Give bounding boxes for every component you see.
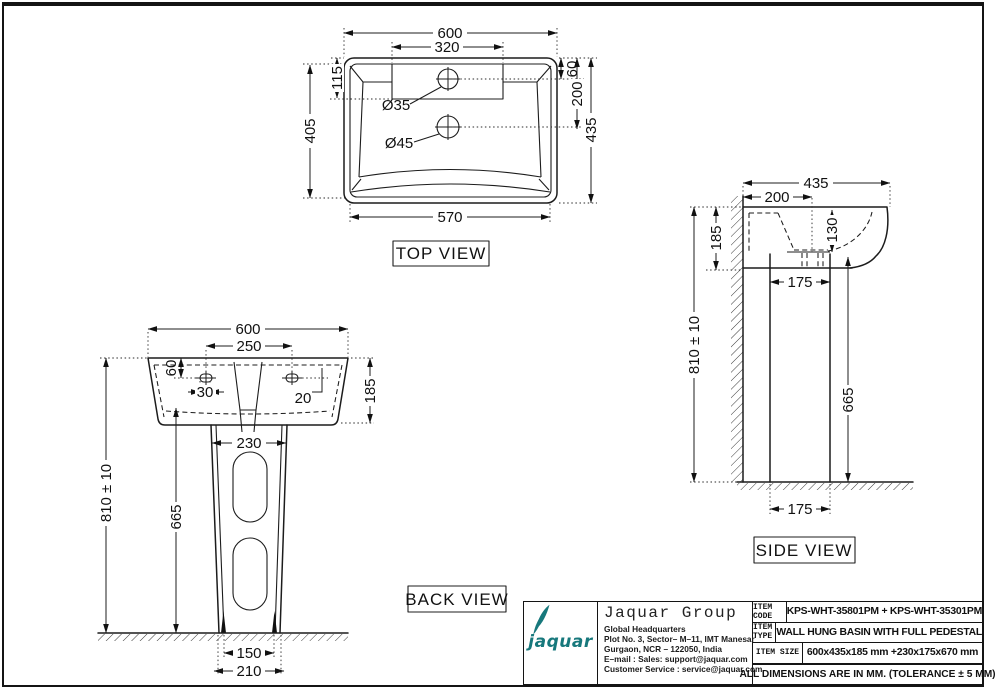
- back-view-ground: [98, 633, 348, 641]
- title-block: jaquar Jaquar Group Global Headquarters …: [523, 601, 983, 685]
- side-view-label: SIDE VIEW: [756, 541, 853, 560]
- back-view-title: BACK VIEW: [405, 586, 508, 612]
- item-size-label: ITEM SIZE: [753, 643, 803, 663]
- dim-hole-drop: 60: [163, 360, 180, 377]
- dim-hole-spacing: 250: [236, 338, 261, 355]
- dim-back-basin-height: 185: [362, 378, 379, 403]
- item-size-row: ITEM SIZE 600x435x185 mm +230x175x670 mm: [753, 643, 982, 664]
- company-service: Customer Service : service@jaquar.com: [604, 664, 748, 674]
- back-view-fixing-holes: [196, 371, 302, 385]
- dim-side-overall-height: 810 ± 10: [686, 316, 703, 374]
- item-code-row: ITEM CODE KPS-WHT-35801PM + KPS-WHT-3530…: [753, 602, 982, 623]
- dim-side-pedestal-height: 665: [840, 387, 857, 412]
- back-view: 600 250 60 30 20 185: [98, 321, 509, 680]
- item-info-cell: ITEM CODE KPS-WHT-35801PM + KPS-WHT-3530…: [753, 602, 982, 684]
- item-type-value: WALL HUNG BASIN WITH FULL PEDESTAL: [776, 623, 982, 643]
- company-email: E–mail : Sales: support@jaquar.com: [604, 654, 748, 664]
- item-size-value: 600x435x185 mm +230x175x670 mm: [803, 643, 982, 663]
- side-view-ground: [737, 482, 913, 490]
- dim-bowl-depth: 130: [824, 217, 841, 242]
- dim-base-depth: 175: [787, 501, 812, 518]
- back-view-pedestal: [211, 425, 287, 633]
- top-view-dimensions: 600 320 115 405 60: [302, 25, 600, 226]
- dim-depth-left: 405: [302, 118, 319, 143]
- dim-side-depth: 435: [803, 175, 828, 192]
- dim-front-width: 570: [437, 209, 462, 226]
- top-view-label: TOP VIEW: [396, 244, 487, 263]
- brand-logo: jaquar: [524, 602, 598, 684]
- dim-side-basin-height: 185: [708, 225, 725, 250]
- item-type-row: ITEM TYPE WALL HUNG BASIN WITH FULL PEDE…: [753, 623, 982, 644]
- dim-hole1-drop: 60: [564, 61, 581, 78]
- dim-drain-offset: 200: [764, 189, 789, 206]
- drawing-canvas: 600 320 115 405 60: [0, 0, 1000, 688]
- dim-base-width: 210: [236, 663, 261, 680]
- side-view-title: SIDE VIEW: [754, 537, 855, 563]
- dim-back-pedestal-height: 665: [168, 504, 185, 529]
- side-view-basin: [743, 207, 888, 268]
- dim-back-overall-height: 810 ± 10: [98, 464, 115, 522]
- dim-foot-width: 150: [236, 645, 261, 662]
- top-view-outline: [344, 58, 557, 203]
- back-view-dimensions: 600 250 60 30 20 185: [98, 321, 379, 680]
- company-cell: Jaquar Group Global Headquarters Plot No…: [598, 602, 753, 684]
- item-type-label: ITEM TYPE: [753, 623, 776, 643]
- dim-back-width: 600: [235, 321, 260, 338]
- dim-deck-depth: 115: [329, 66, 346, 90]
- dim-depth-right: 435: [583, 117, 600, 142]
- tolerance-note: ALL DIMENSIONS ARE IN MM. (TOLERANCE ± 5…: [753, 664, 982, 685]
- item-code-label: ITEM CODE: [753, 602, 787, 622]
- dim-hole-side: 20: [295, 390, 312, 407]
- label-hole1-dia: Ø35: [382, 97, 410, 114]
- company-address-1: Plot No. 3, Sector– M–11, IMT Manesar: [604, 634, 748, 644]
- company-address-2: Gurgaon, NCR – 122050, India: [604, 644, 748, 654]
- top-view: 600 320 115 405 60: [302, 25, 600, 266]
- back-view-label: BACK VIEW: [405, 590, 508, 609]
- dim-deck-width: 320: [434, 39, 459, 56]
- item-code-value: KPS-WHT-35801PM + KPS-WHT-35301PM: [787, 602, 982, 622]
- side-view-dimensions: 435 200 185 130 175: [686, 175, 890, 518]
- label-hole2-dia: Ø45: [385, 135, 413, 152]
- dim-pedestal-width: 230: [236, 435, 261, 452]
- company-name: Jaquar Group: [604, 604, 748, 622]
- top-view-title: TOP VIEW: [393, 241, 489, 266]
- side-view: 435 200 185 130 175: [686, 175, 913, 563]
- company-dept: Global Headquarters: [604, 624, 748, 634]
- dim-hole-inset: 30: [197, 384, 214, 401]
- drawing-sheet: 600 320 115 405 60: [0, 0, 1000, 688]
- dim-pedestal-depth: 175: [787, 274, 812, 291]
- jaquar-leaf-icon: [524, 602, 558, 638]
- side-view-wall: [731, 196, 743, 482]
- dim-hole2-drop: 200: [569, 81, 586, 106]
- top-view-extension-lines: [303, 28, 597, 222]
